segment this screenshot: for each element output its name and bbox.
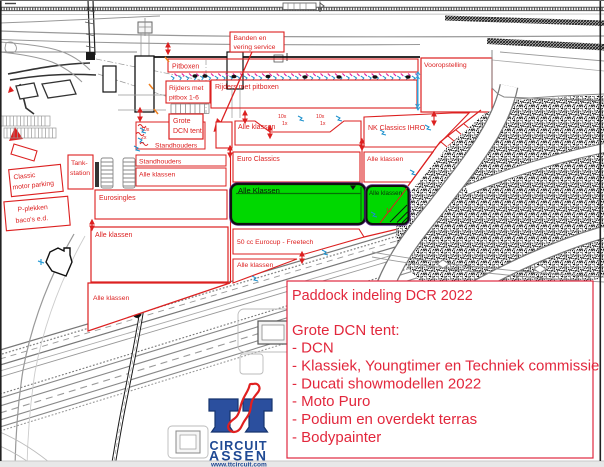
- svg-text:NK Classics IHRO: NK Classics IHRO: [368, 125, 426, 132]
- svg-text:- Moto Puro: - Moto Puro: [292, 393, 370, 410]
- svg-text:station: station: [70, 170, 90, 177]
- svg-text:Tank-: Tank-: [71, 160, 88, 167]
- svg-text:10x: 10x: [278, 114, 287, 120]
- svg-text:Rijders met pitboxen: Rijders met pitboxen: [215, 84, 279, 91]
- svg-text:Banden en: Banden en: [234, 35, 267, 42]
- svg-text:Vooropstelling: Vooropstelling: [424, 62, 467, 69]
- svg-text:vering service: vering service: [234, 44, 276, 51]
- svg-text:1x: 1x: [320, 121, 326, 127]
- svg-text:- Ducati showmodellen 2022: - Ducati showmodellen 2022: [292, 376, 481, 393]
- svg-text:- Klassiek, Youngtimer en Tech: - Klassiek, Youngtimer en Techniek commi…: [292, 358, 599, 375]
- svg-text:Alle klassen: Alle klassen: [237, 262, 273, 269]
- svg-text:1x: 1x: [386, 208, 392, 214]
- svg-text:Grote: Grote: [173, 118, 191, 125]
- svg-text:www.ttcircuit.com: www.ttcircuit.com: [210, 462, 267, 467]
- svg-text:Paddock indeling DCR 2022: Paddock indeling DCR 2022: [292, 288, 473, 304]
- svg-text:Rijders met: Rijders met: [169, 85, 203, 92]
- svg-text:50 cc Eurocup - Freetech: 50 cc Eurocup - Freetech: [237, 239, 314, 246]
- svg-text:Alle klassen: Alle klassen: [367, 156, 403, 163]
- svg-text:- DCN: - DCN: [292, 340, 334, 357]
- svg-text:10x: 10x: [316, 114, 325, 120]
- svg-text:Grote DCN tent:: Grote DCN tent:: [292, 322, 400, 339]
- svg-text:Standhouders: Standhouders: [139, 159, 182, 166]
- svg-text:DCN tent: DCN tent: [173, 128, 202, 135]
- svg-text:- Podium en overdekt terras: - Podium en overdekt terras: [292, 411, 477, 428]
- svg-text:Alle Klassen: Alle Klassen: [238, 186, 280, 195]
- svg-text:Standhouders: Standhouders: [155, 143, 198, 150]
- svg-text:Eurosingles: Eurosingles: [99, 195, 136, 202]
- svg-text:pitbox 1-6: pitbox 1-6: [169, 95, 199, 102]
- svg-text:Alle klassen: Alle klassen: [93, 295, 129, 302]
- svg-text:Alle klassen: Alle klassen: [369, 190, 403, 197]
- svg-text:1x: 1x: [282, 121, 288, 127]
- svg-text:Alle klassen: Alle klassen: [139, 172, 175, 179]
- svg-text:- Bodypainter: - Bodypainter: [292, 429, 381, 446]
- svg-text:Pitboxen: Pitboxen: [172, 64, 199, 71]
- svg-text:Euro Classics: Euro Classics: [237, 156, 280, 163]
- svg-text:Alle klassen: Alle klassen: [95, 232, 132, 239]
